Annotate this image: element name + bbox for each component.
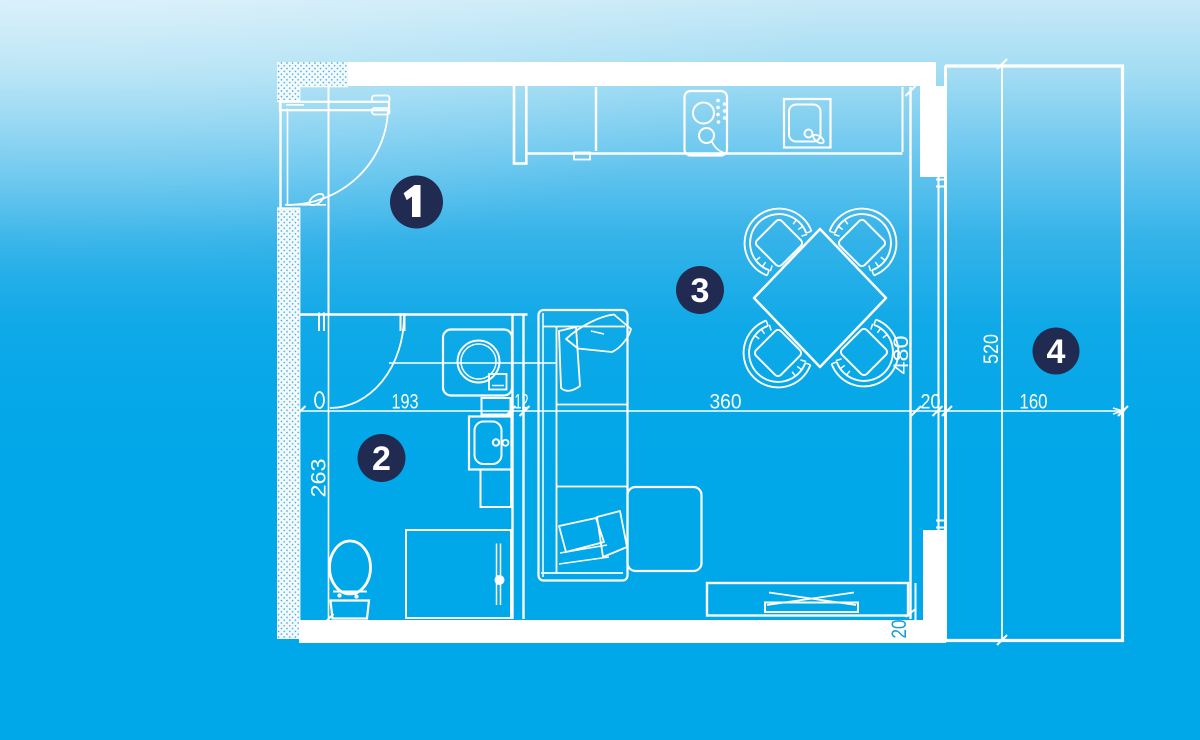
svg-text:263: 263 [308, 459, 331, 498]
svg-text:12: 12 [515, 391, 529, 414]
svg-text:20: 20 [921, 391, 941, 414]
svg-text:360: 360 [710, 391, 742, 414]
svg-text:480: 480 [890, 336, 913, 375]
svg-text:2: 2 [372, 440, 391, 478]
svg-text:4: 4 [1047, 333, 1066, 371]
svg-text:160: 160 [1020, 391, 1048, 414]
svg-text:20: 20 [888, 620, 911, 639]
svg-text:193: 193 [392, 391, 419, 414]
svg-text:3: 3 [691, 272, 710, 310]
svg-text:520: 520 [980, 334, 1003, 364]
